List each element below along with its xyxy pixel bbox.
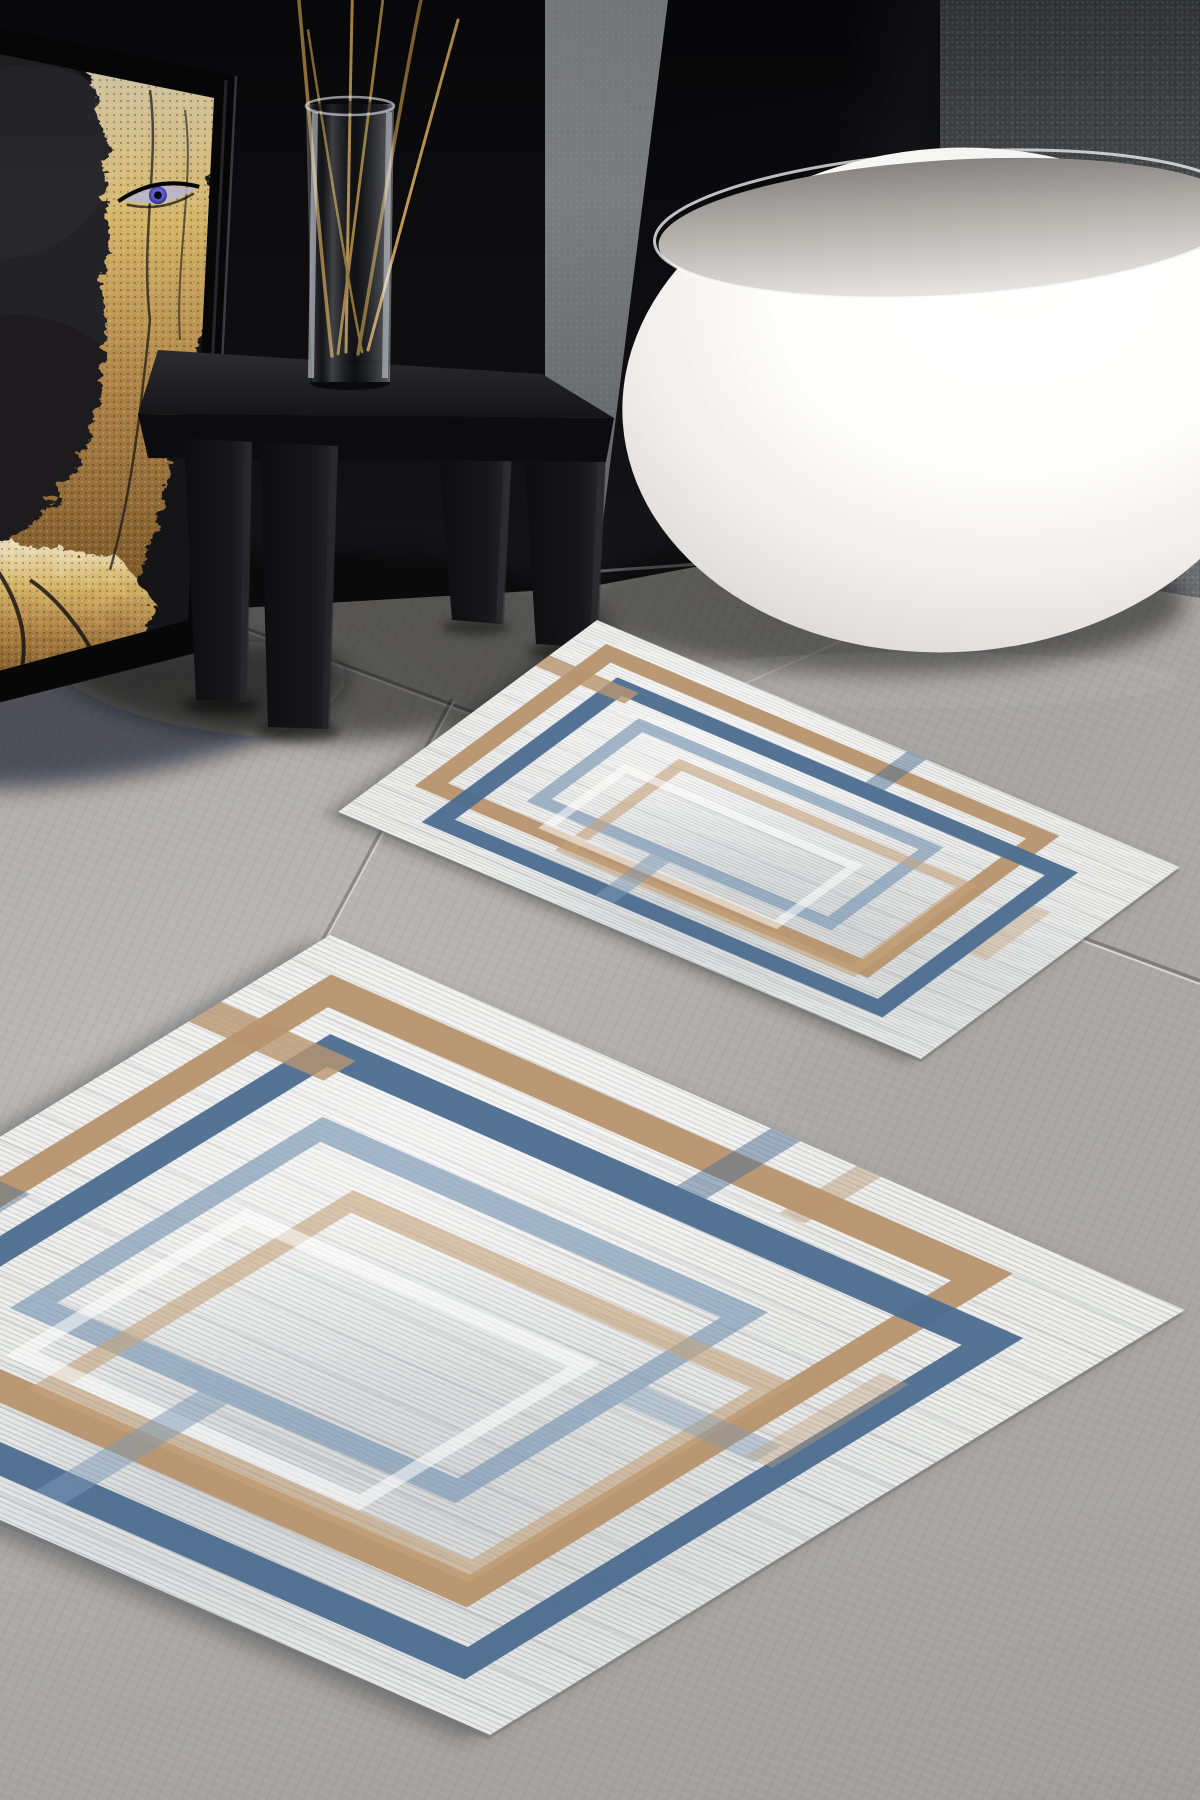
- glass-body: [306, 104, 394, 382]
- bathroom-scene: [0, 0, 1200, 1800]
- glass-vase-with-gold-twigs: [297, 0, 458, 390]
